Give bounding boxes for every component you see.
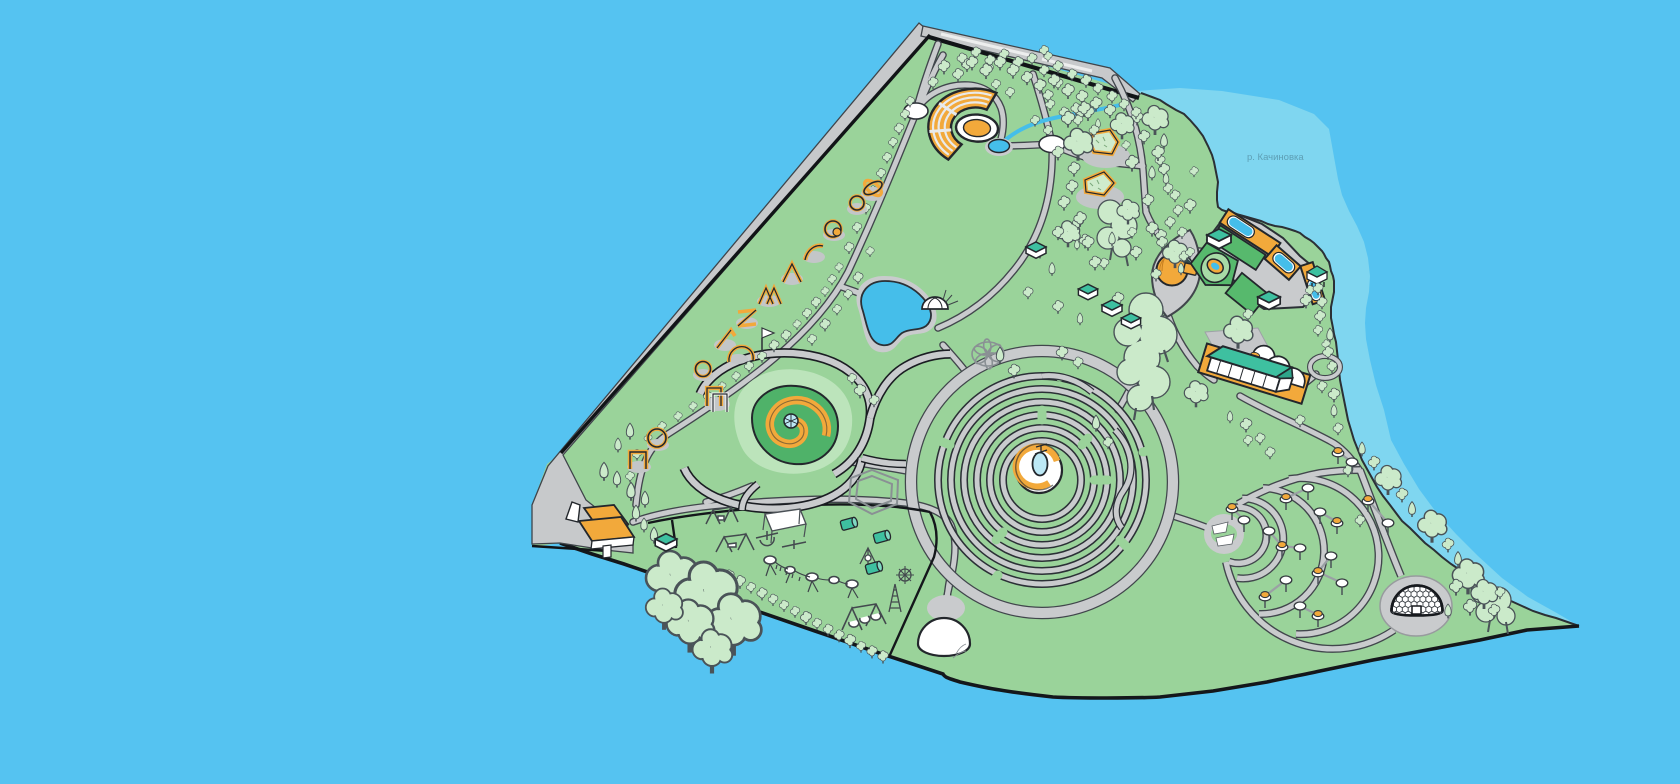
svg-text:р. Качиновка: р. Качиновка — [1247, 152, 1304, 163]
